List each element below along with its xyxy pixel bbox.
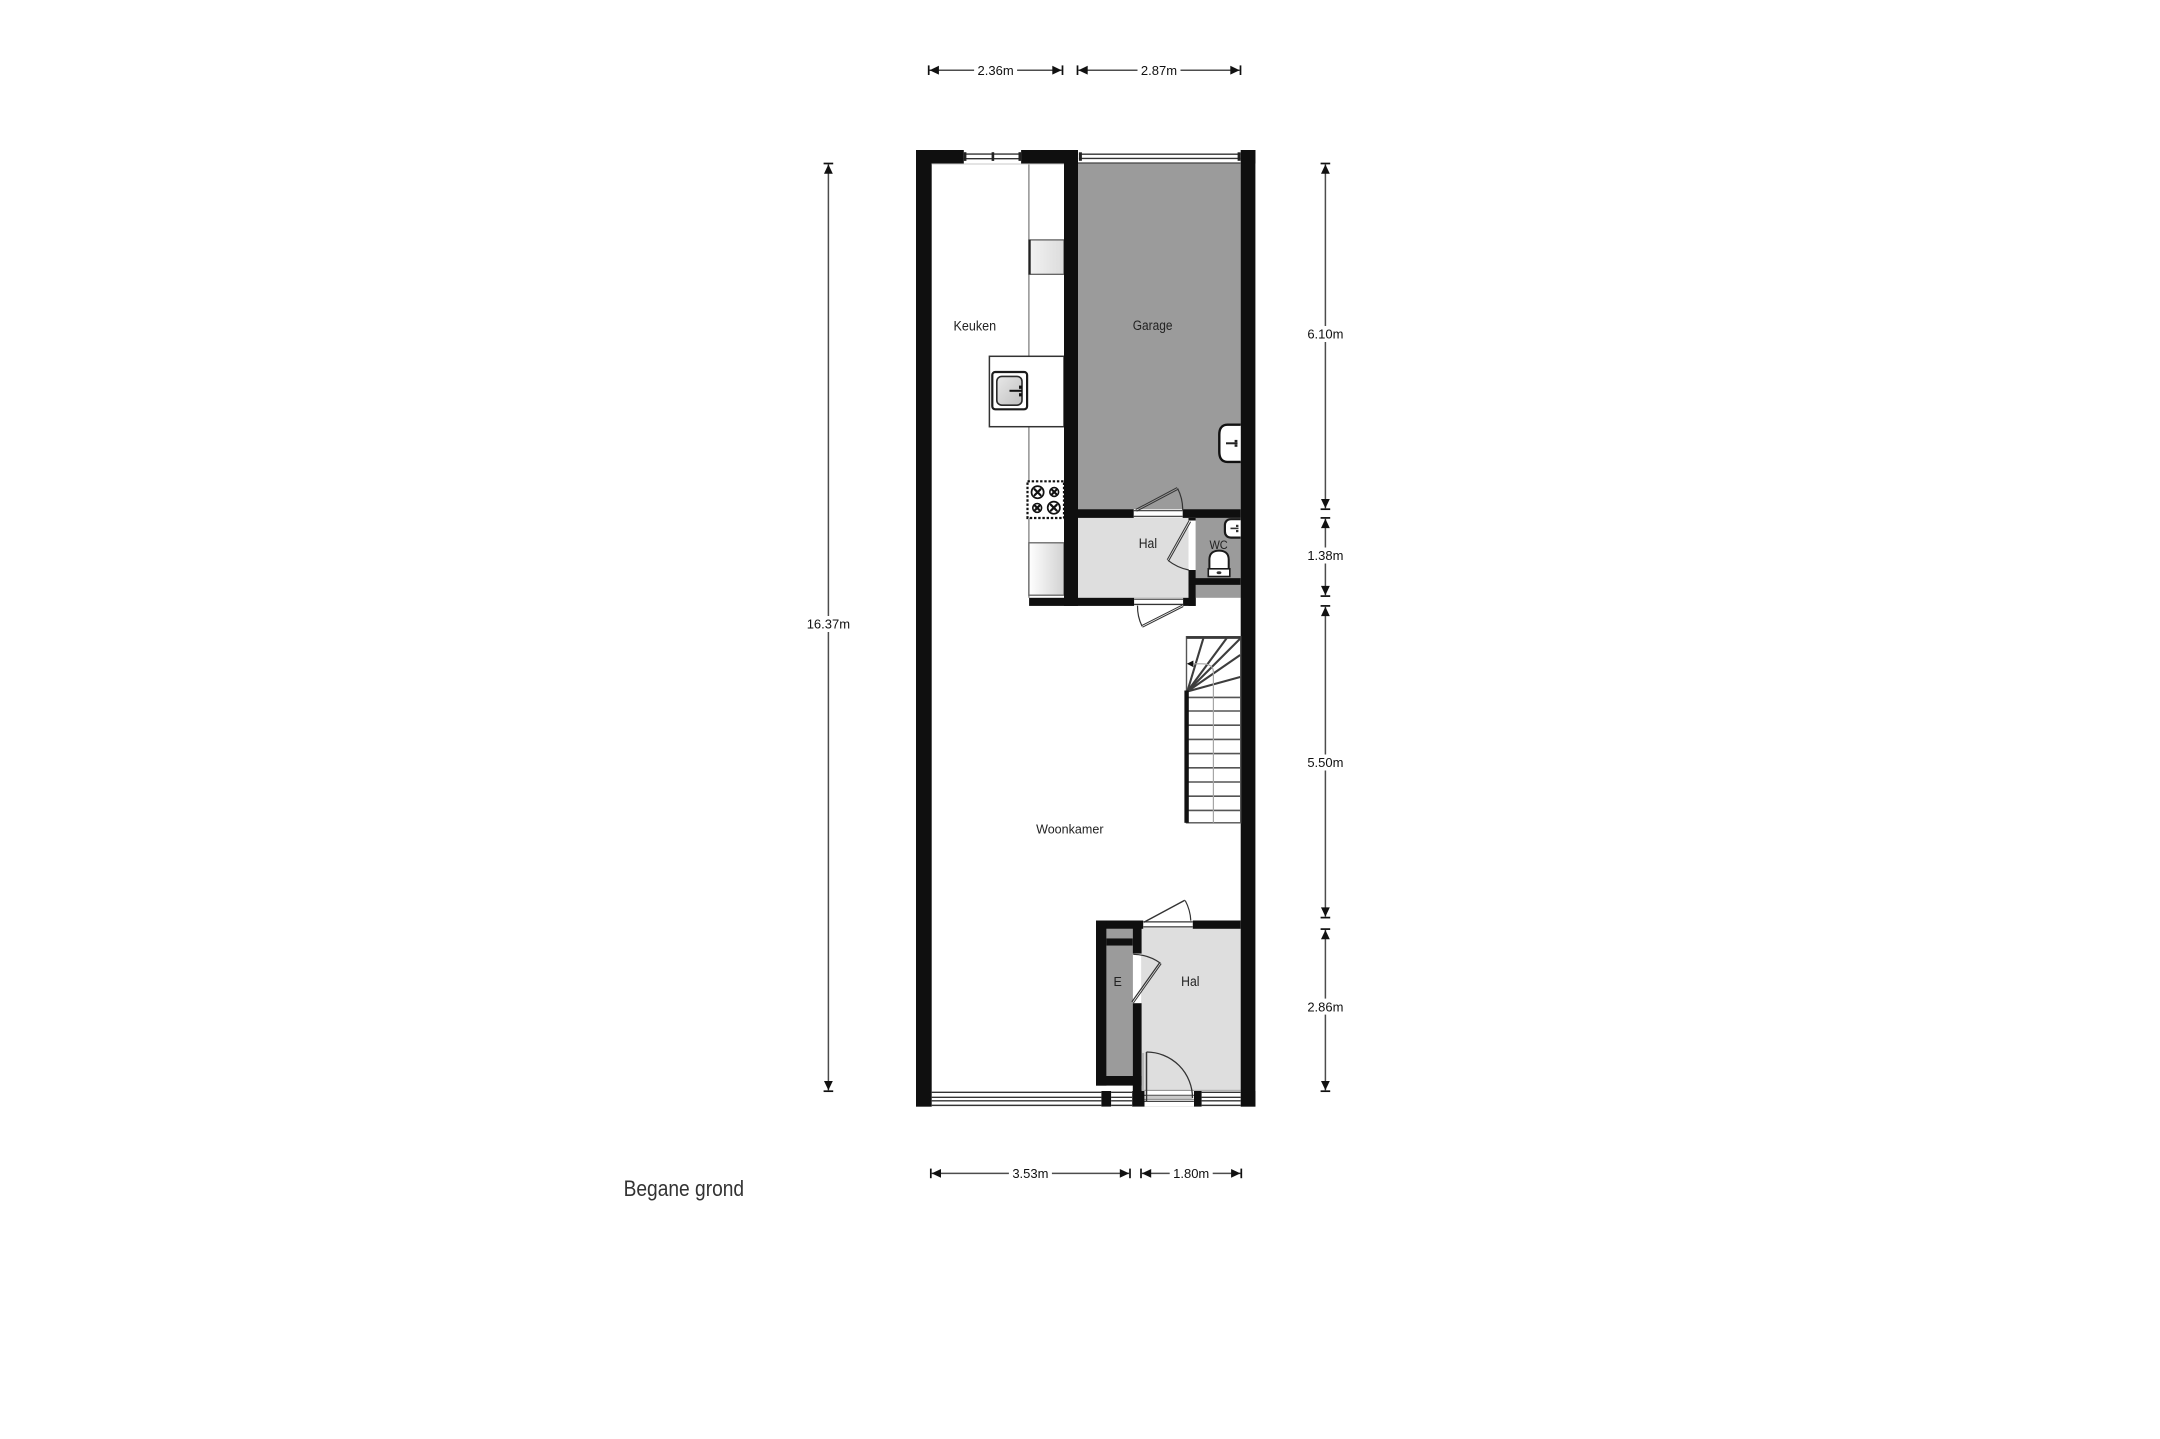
svg-text:1.80m: 1.80m (1173, 1166, 1209, 1181)
svg-text:2.87m: 2.87m (1141, 63, 1177, 78)
svg-text:Begane grond: Begane grond (624, 1176, 745, 1201)
svg-text:3.53m: 3.53m (1012, 1166, 1048, 1181)
svg-text:Keuken: Keuken (953, 318, 996, 334)
svg-text:Woonkamer: Woonkamer (1036, 821, 1104, 836)
svg-text:16.37m: 16.37m (807, 617, 850, 632)
svg-text:2.36m: 2.36m (978, 63, 1014, 78)
svg-text:Hal: Hal (1181, 974, 1199, 989)
svg-text:5.50m: 5.50m (1307, 755, 1343, 770)
svg-text:6.10m: 6.10m (1307, 327, 1343, 342)
svg-text:Hal: Hal (1139, 536, 1157, 551)
svg-text:E: E (1114, 975, 1122, 989)
svg-text:WC: WC (1209, 538, 1228, 552)
svg-text:1.38m: 1.38m (1307, 548, 1343, 563)
svg-text:Garage: Garage (1133, 318, 1173, 333)
svg-text:2.86m: 2.86m (1307, 999, 1343, 1014)
